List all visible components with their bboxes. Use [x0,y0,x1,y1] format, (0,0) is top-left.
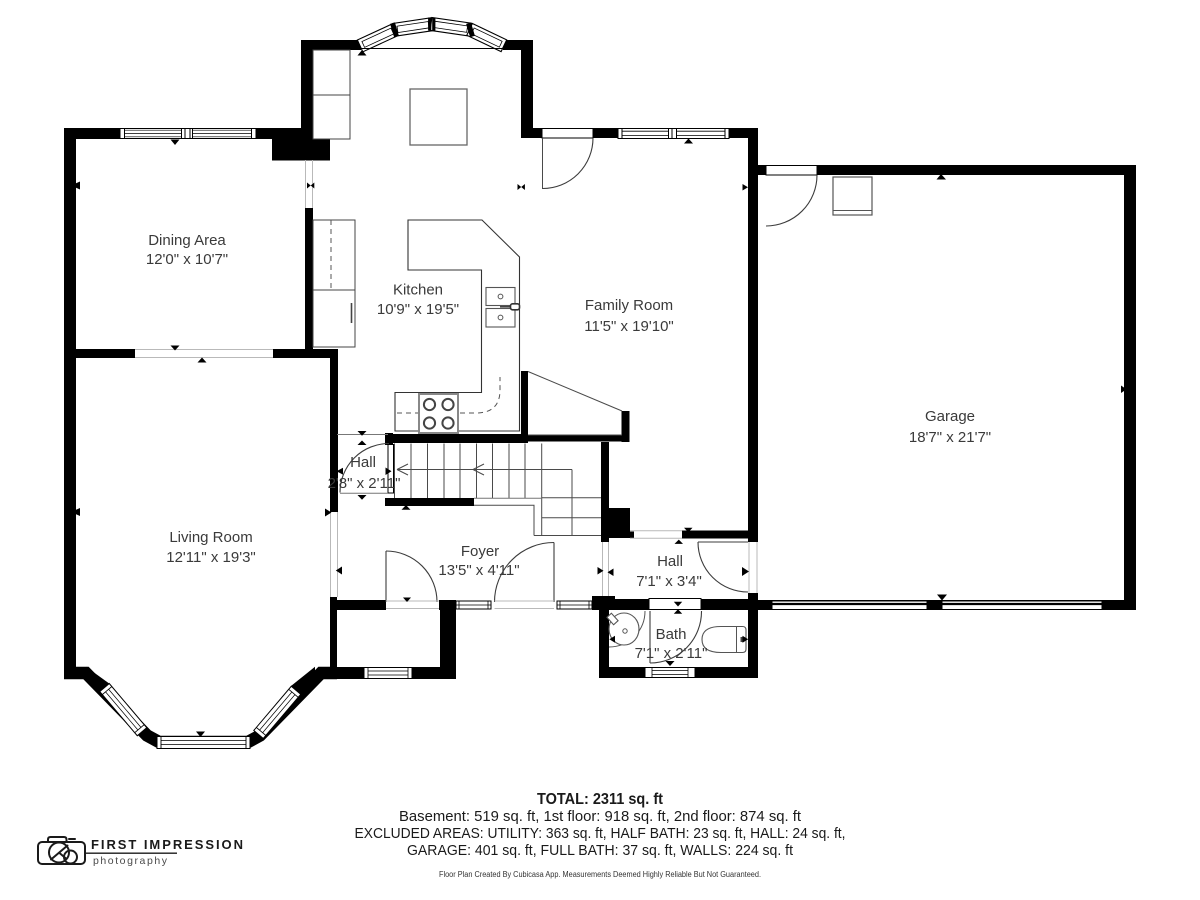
svg-text:Hall: Hall [350,454,376,471]
svg-text:18'7" x 21'7": 18'7" x 21'7" [909,429,991,446]
svg-text:10'9" x 19'5": 10'9" x 19'5" [377,301,459,318]
svg-text:13'5" x 4'11": 13'5" x 4'11" [438,562,519,579]
svg-text:7'1" x 2'11": 7'1" x 2'11" [635,645,708,662]
svg-text:Living Room: Living Room [169,529,252,546]
svg-text:Kitchen: Kitchen [393,282,443,299]
svg-text:Basement: 519 sq. ft, 1st floo: Basement: 519 sq. ft, 1st floor: 918 sq.… [399,808,802,825]
svg-text:Hall: Hall [657,553,683,570]
svg-text:11'5" x 19'10": 11'5" x 19'10" [584,318,674,335]
svg-text:Floor Plan Created By Cubicasa: Floor Plan Created By Cubicasa App. Meas… [439,870,761,879]
svg-text:12'0" x 10'7": 12'0" x 10'7" [146,251,228,268]
svg-text:GARAGE: 401 sq. ft, FULL BATH:: GARAGE: 401 sq. ft, FULL BATH: 37 sq. ft… [407,842,794,859]
svg-text:7'1" x 3'4": 7'1" x 3'4" [636,573,702,590]
svg-text:Garage: Garage [925,408,975,425]
svg-text:TOTAL: 2311 sq. ft: TOTAL: 2311 sq. ft [537,791,663,808]
svg-text:EXCLUDED AREAS: UTILITY: 363 s: EXCLUDED AREAS: UTILITY: 363 sq. ft, HAL… [355,825,846,842]
svg-text:Bath: Bath [656,626,687,643]
svg-text:12'11" x 19'3": 12'11" x 19'3" [166,549,256,566]
svg-text:Foyer: Foyer [461,543,499,560]
svg-text:2'8" x 2'11": 2'8" x 2'11" [328,475,401,492]
svg-text:photography: photography [93,855,168,867]
svg-text:Family Room: Family Room [585,297,673,314]
svg-text:Dining Area: Dining Area [148,232,226,249]
